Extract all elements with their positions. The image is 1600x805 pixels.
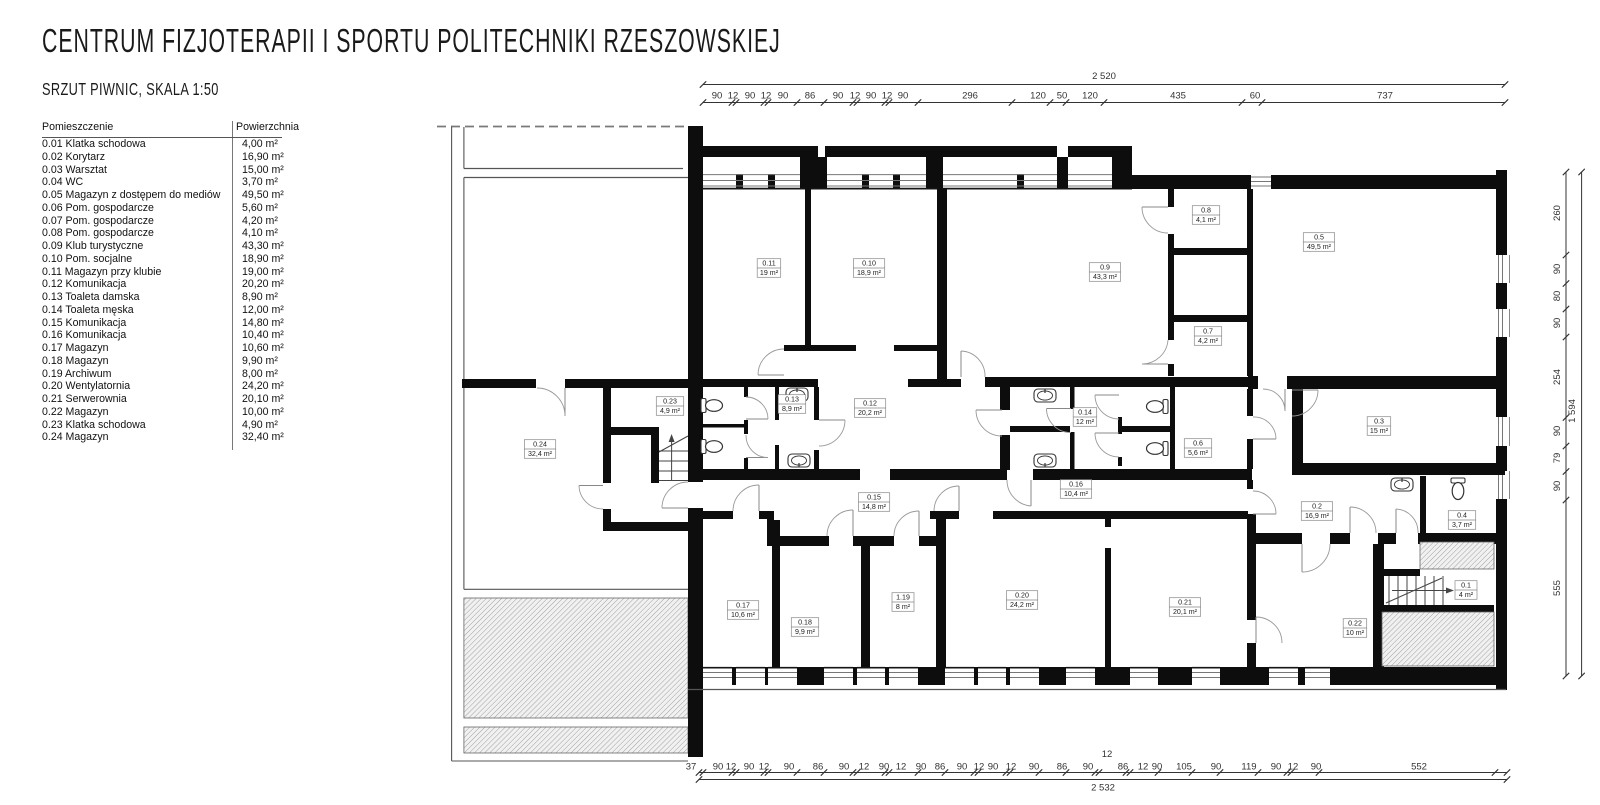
svg-text:12: 12 <box>859 762 870 773</box>
svg-text:20,1 m²: 20,1 m² <box>1173 608 1198 616</box>
svg-text:120: 120 <box>1082 91 1098 102</box>
svg-text:14,8 m²: 14,8 m² <box>862 503 887 511</box>
svg-text:4,2 m²: 4,2 m² <box>1198 337 1219 345</box>
svg-text:24,2 m²: 24,2 m² <box>1010 601 1035 609</box>
svg-text:0.18: 0.18 <box>798 618 812 626</box>
svg-text:10,6 m²: 10,6 m² <box>731 611 756 619</box>
svg-text:12: 12 <box>974 762 985 773</box>
svg-text:0.6: 0.6 <box>1193 439 1203 447</box>
svg-text:12 m²: 12 m² <box>1076 418 1095 426</box>
svg-text:0.5: 0.5 <box>1314 233 1324 241</box>
svg-text:12: 12 <box>850 91 861 102</box>
svg-text:90: 90 <box>1552 318 1563 329</box>
svg-text:90: 90 <box>1552 481 1563 492</box>
svg-text:12: 12 <box>759 762 770 773</box>
svg-text:4,1 m²: 4,1 m² <box>1196 216 1217 224</box>
svg-text:0.13: 0.13 <box>785 395 799 403</box>
svg-text:4 m²: 4 m² <box>1459 591 1474 599</box>
svg-text:90: 90 <box>916 762 927 773</box>
svg-text:0.16: 0.16 <box>1069 480 1083 488</box>
svg-text:0.1: 0.1 <box>1461 581 1471 589</box>
svg-text:15 m²: 15 m² <box>1370 427 1389 435</box>
svg-text:90: 90 <box>879 762 890 773</box>
svg-text:90: 90 <box>784 762 795 773</box>
svg-text:90: 90 <box>833 91 844 102</box>
svg-text:0.7: 0.7 <box>1203 327 1213 335</box>
svg-text:90: 90 <box>712 91 723 102</box>
svg-text:90: 90 <box>957 762 968 773</box>
svg-text:0.23: 0.23 <box>663 397 677 405</box>
svg-text:12: 12 <box>882 91 893 102</box>
svg-text:2 520: 2 520 <box>1092 71 1116 82</box>
svg-text:3,7 m²: 3,7 m² <box>1452 521 1473 529</box>
svg-text:0.17: 0.17 <box>736 601 750 609</box>
svg-text:12: 12 <box>1288 762 1299 773</box>
svg-text:0.15: 0.15 <box>867 493 881 501</box>
svg-text:0.9: 0.9 <box>1100 263 1110 271</box>
svg-text:37: 37 <box>686 762 697 773</box>
svg-text:49,5 m²: 49,5 m² <box>1307 243 1332 251</box>
svg-text:555: 555 <box>1552 580 1563 596</box>
svg-text:552: 552 <box>1411 762 1427 773</box>
svg-text:90: 90 <box>898 91 909 102</box>
svg-text:12: 12 <box>726 762 737 773</box>
svg-text:90: 90 <box>1211 762 1222 773</box>
svg-text:90: 90 <box>713 762 724 773</box>
svg-text:16,9 m²: 16,9 m² <box>1305 512 1330 520</box>
svg-text:0.20: 0.20 <box>1015 591 1029 599</box>
svg-text:0.24: 0.24 <box>533 440 547 448</box>
svg-text:90: 90 <box>778 91 789 102</box>
svg-text:18,9 m²: 18,9 m² <box>857 269 882 277</box>
svg-text:260: 260 <box>1552 205 1563 221</box>
svg-text:4,9 m²: 4,9 m² <box>660 407 681 415</box>
svg-text:90: 90 <box>988 762 999 773</box>
svg-text:120: 120 <box>1030 91 1046 102</box>
svg-text:32,4 m²: 32,4 m² <box>528 450 553 458</box>
svg-text:119: 119 <box>1241 762 1256 773</box>
svg-text:10,4 m²: 10,4 m² <box>1064 490 1089 498</box>
svg-text:0.3: 0.3 <box>1374 417 1384 425</box>
svg-text:86: 86 <box>805 91 816 102</box>
svg-text:86: 86 <box>1118 762 1129 773</box>
svg-text:8,9 m²: 8,9 m² <box>782 405 803 413</box>
svg-text:254: 254 <box>1552 369 1563 385</box>
svg-text:12: 12 <box>896 762 907 773</box>
svg-text:9,9 m²: 9,9 m² <box>795 628 816 636</box>
svg-text:0.2: 0.2 <box>1312 502 1322 510</box>
svg-text:435: 435 <box>1170 91 1186 102</box>
svg-text:0.8: 0.8 <box>1201 206 1211 214</box>
svg-text:12: 12 <box>1006 762 1017 773</box>
svg-text:90: 90 <box>744 762 755 773</box>
svg-text:0.14: 0.14 <box>1078 408 1092 416</box>
svg-text:20,2 m²: 20,2 m² <box>858 409 883 417</box>
svg-text:12: 12 <box>1138 762 1149 773</box>
svg-text:1 594: 1 594 <box>1567 399 1578 423</box>
svg-text:12: 12 <box>761 91 772 102</box>
svg-text:0.22: 0.22 <box>1348 619 1362 627</box>
svg-text:0.11: 0.11 <box>762 259 775 267</box>
svg-text:90: 90 <box>745 91 756 102</box>
svg-text:86: 86 <box>813 762 824 773</box>
svg-text:90: 90 <box>1271 762 1282 773</box>
svg-text:90: 90 <box>1152 762 1163 773</box>
svg-text:5,6 m²: 5,6 m² <box>1188 449 1209 457</box>
svg-text:0.12: 0.12 <box>863 399 877 407</box>
svg-text:90: 90 <box>1083 762 1094 773</box>
svg-text:0.10: 0.10 <box>862 259 876 267</box>
svg-text:80: 80 <box>1552 291 1563 302</box>
svg-text:12: 12 <box>728 91 739 102</box>
svg-text:90: 90 <box>1552 264 1563 275</box>
svg-text:296: 296 <box>962 91 978 102</box>
svg-text:86: 86 <box>1057 762 1068 773</box>
svg-text:737: 737 <box>1377 91 1393 102</box>
svg-text:60: 60 <box>1250 91 1261 102</box>
svg-text:10 m²: 10 m² <box>1346 629 1365 637</box>
svg-text:43,3 m²: 43,3 m² <box>1093 273 1118 281</box>
svg-text:0.4: 0.4 <box>1457 511 1467 519</box>
svg-text:0.21: 0.21 <box>1178 598 1192 606</box>
svg-text:90: 90 <box>839 762 850 773</box>
svg-text:90: 90 <box>1029 762 1040 773</box>
svg-text:90: 90 <box>1552 426 1563 437</box>
svg-text:90: 90 <box>866 91 877 102</box>
svg-text:50: 50 <box>1057 91 1068 102</box>
svg-text:105: 105 <box>1176 762 1192 773</box>
svg-text:2 532: 2 532 <box>1091 783 1115 794</box>
svg-text:12: 12 <box>1102 749 1113 760</box>
svg-text:79: 79 <box>1552 453 1563 464</box>
svg-text:86: 86 <box>935 762 946 773</box>
svg-text:90: 90 <box>1311 762 1322 773</box>
svg-text:1.19: 1.19 <box>896 593 910 601</box>
svg-text:19 m²: 19 m² <box>760 269 779 277</box>
svg-text:8 m²: 8 m² <box>896 603 911 611</box>
